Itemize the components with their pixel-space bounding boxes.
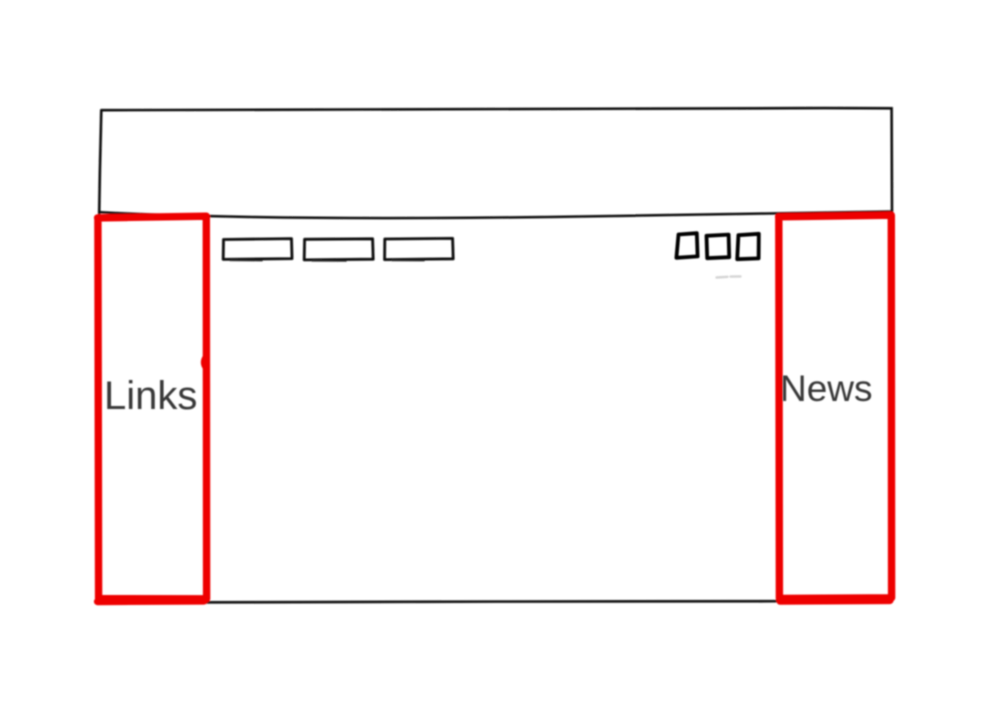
svg-text:News: News <box>780 368 873 409</box>
svg-text:Links: Links <box>104 374 197 418</box>
